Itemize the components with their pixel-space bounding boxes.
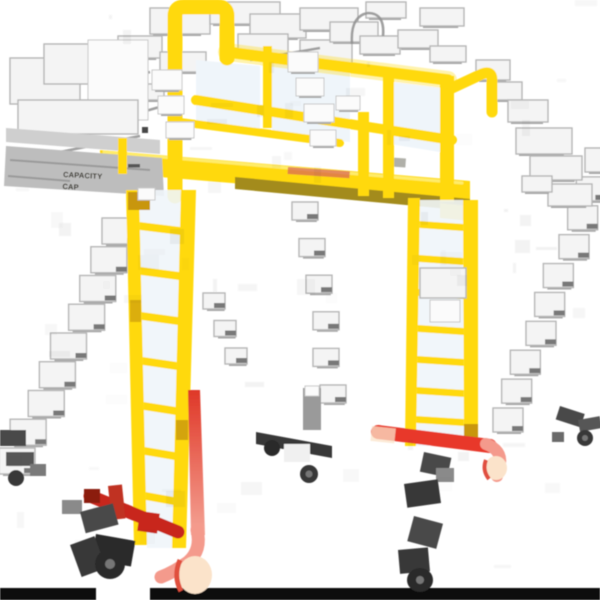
artifact-block: [366, 2, 406, 18]
noise-speck: [450, 269, 461, 276]
noise-speck: [536, 247, 557, 250]
noise-speck: [346, 88, 365, 96]
artifact-block: [53, 411, 64, 416]
noise-speck: [241, 482, 262, 495]
artifact-block: [336, 96, 360, 110]
artifact-block: [94, 324, 105, 329]
artifact-block: [587, 224, 598, 229]
guardrail-post: [358, 112, 369, 196]
floor-shadow-bar: [0, 588, 600, 600]
noise-speck: [387, 130, 391, 145]
front-caster-wheel-pale: [178, 556, 212, 594]
noise-speck: [441, 250, 446, 265]
noise-speck: [124, 295, 142, 303]
artifact-block: [166, 122, 194, 138]
noise-speck: [110, 363, 127, 373]
artifact-block: [554, 310, 565, 315]
noise-speck: [412, 255, 420, 265]
noise-speck: [290, 101, 301, 106]
left-guardrail-section: CAPACITY CAP: [4, 40, 164, 196]
noise-speck: [170, 229, 184, 244]
noise-speck: [343, 469, 359, 482]
noise-speck: [284, 152, 292, 160]
noise-speck: [297, 279, 315, 295]
noise-speck: [456, 134, 472, 145]
artifact-block: [585, 148, 600, 172]
artifact-block: [335, 397, 346, 402]
guardrail-post: [118, 138, 127, 174]
noise-speck: [457, 275, 467, 286]
noise-speck: [207, 119, 227, 124]
noise-speck: [144, 249, 165, 255]
noise-speck: [89, 467, 99, 470]
artifact-block: [288, 52, 318, 72]
rear-ladder: [405, 198, 478, 446]
noise-speck: [367, 62, 370, 67]
artifact-block: [76, 353, 87, 358]
noise-speck: [522, 120, 530, 136]
artifact-block: [548, 184, 592, 206]
noise-speck: [245, 382, 264, 387]
artifact-block: [304, 104, 334, 122]
artifact-block: [398, 30, 438, 48]
noise-speck: [520, 215, 531, 226]
noise-speck: [123, 30, 131, 44]
noise-speck: [138, 255, 159, 270]
noise-speck: [575, 0, 597, 6]
noise-speck: [16, 188, 29, 191]
noise-speck: [217, 503, 236, 513]
artifact-block: [307, 214, 318, 219]
noise-speck: [408, 440, 413, 450]
noise-speck: [399, 136, 410, 141]
noise-speck: [213, 279, 217, 292]
artifact-block: [595, 195, 600, 200]
artifact-block: [521, 397, 532, 402]
noise-speck: [140, 529, 155, 544]
artifact-block: [328, 360, 339, 365]
noise-speck: [51, 212, 63, 228]
noise-speck: [75, 540, 92, 544]
noise-speck: [166, 491, 185, 507]
artifact-block: [236, 358, 247, 363]
noise-speck: [106, 395, 127, 404]
rear-ladder-right-rail: [463, 200, 478, 446]
noise-speck: [421, 487, 432, 491]
noise-speck: [515, 240, 530, 253]
noise-speck: [238, 284, 257, 291]
noise-speck: [513, 263, 516, 273]
artifact-block: [420, 8, 464, 26]
rear-corner-post: [440, 76, 454, 202]
splayed-leg-artifacts: [0, 148, 600, 476]
noise-speck: [557, 79, 566, 82]
artifact-block: [328, 324, 339, 329]
artifact-block: [116, 267, 127, 272]
noise-speck: [45, 324, 57, 335]
front-ladder: [126, 188, 196, 548]
noise-speck: [211, 103, 233, 107]
caster-wheel: [264, 440, 280, 456]
noise-speck: [8, 456, 22, 467]
rear-caster: [398, 452, 454, 592]
artifact-block: [512, 426, 523, 431]
noise-speck: [438, 477, 452, 491]
noise-speck: [208, 181, 221, 193]
artifact-block: [430, 300, 460, 322]
artifact-block: [360, 36, 400, 54]
artifact-block: [545, 339, 556, 344]
noise-speck: [190, 147, 212, 150]
capacity-label-line2: CAP: [62, 182, 79, 192]
artifact-block: [35, 439, 46, 444]
artifact-block: [105, 296, 116, 301]
noise-speck: [269, 62, 274, 73]
noise-speck: [494, 565, 511, 568]
artifact-block: [529, 368, 540, 373]
noise-speck: [314, 167, 321, 183]
noise-speck: [162, 489, 181, 492]
noise-speck: [421, 212, 428, 225]
noise-speck: [326, 293, 337, 303]
artifact-block: [296, 78, 324, 96]
noise-speck: [511, 101, 529, 109]
noise-speck: [109, 15, 112, 19]
noise-speck: [272, 156, 281, 168]
product-photo: CAPACITY CAP: [0, 0, 600, 600]
noise-speck: [49, 351, 70, 357]
artifact-block: [214, 303, 225, 308]
noise-speck: [503, 443, 525, 447]
middle-caster: [256, 386, 332, 483]
noise-speck: [182, 258, 189, 270]
artifact-block: [225, 331, 236, 336]
noise-speck: [93, 506, 108, 514]
caster-wheel: [8, 470, 24, 486]
guardrail-post: [263, 46, 272, 128]
artifact-block: [562, 282, 573, 287]
platform-ladder-illustration: CAPACITY CAP: [0, 0, 600, 600]
noise-speck: [545, 483, 560, 493]
artifact-block: [64, 382, 75, 387]
noise-speck: [573, 308, 585, 318]
noise-speck: [103, 281, 110, 289]
noise-speck: [458, 452, 469, 461]
artifact-block: [152, 70, 182, 90]
front-red-post: [188, 390, 205, 535]
artifact-block: [314, 251, 325, 256]
right-caster: [552, 406, 600, 446]
artifact-block: [578, 253, 589, 258]
noise-speck: [17, 512, 24, 528]
noise-speck: [504, 209, 508, 212]
artifact-block: [158, 96, 184, 114]
artifact-block: [321, 287, 332, 292]
artifact-block: [310, 130, 336, 146]
noise-speck: [257, 105, 264, 117]
artifact-block: [522, 176, 552, 192]
artifact-block: [430, 46, 466, 62]
